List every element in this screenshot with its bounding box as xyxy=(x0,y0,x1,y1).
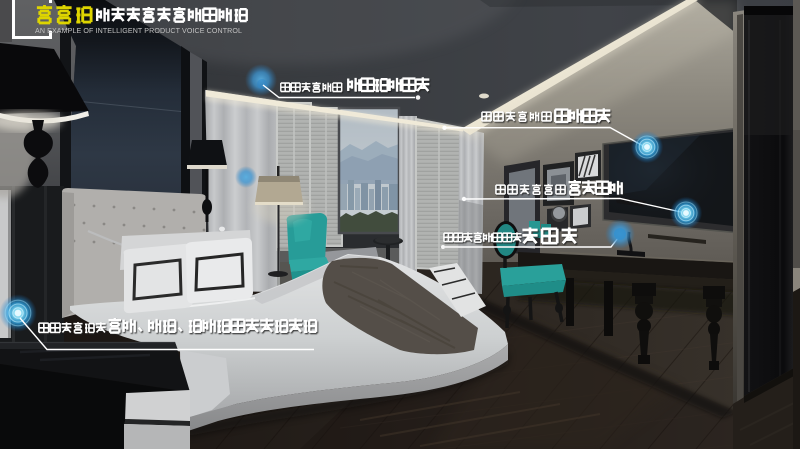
svg-text:AN EXAMPLE OF INTELLIGENT PROD: AN EXAMPLE OF INTELLIGENT PRODUCT VOICE … xyxy=(35,27,242,35)
